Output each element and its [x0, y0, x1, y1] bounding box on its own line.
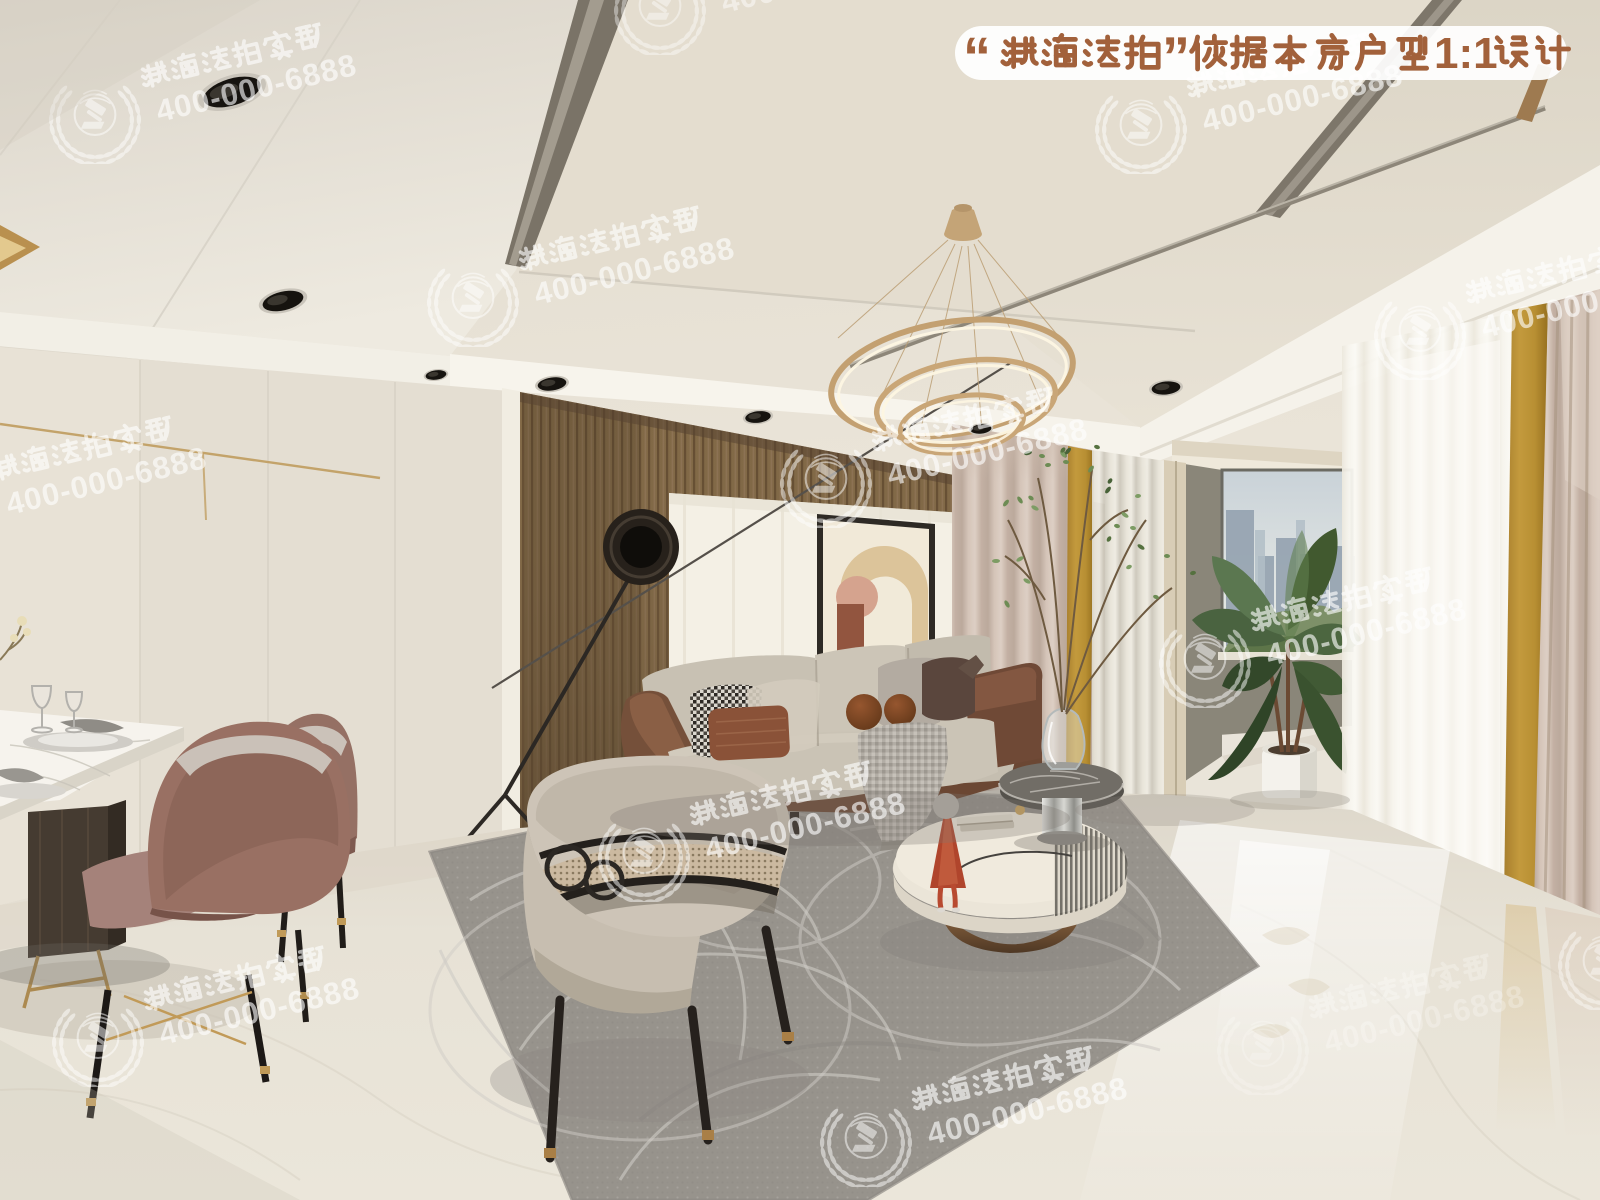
svg-text:”: ”: [1162, 25, 1190, 88]
svg-text:1:1: 1:1: [1434, 29, 1498, 78]
svg-text:“: “: [963, 25, 991, 88]
